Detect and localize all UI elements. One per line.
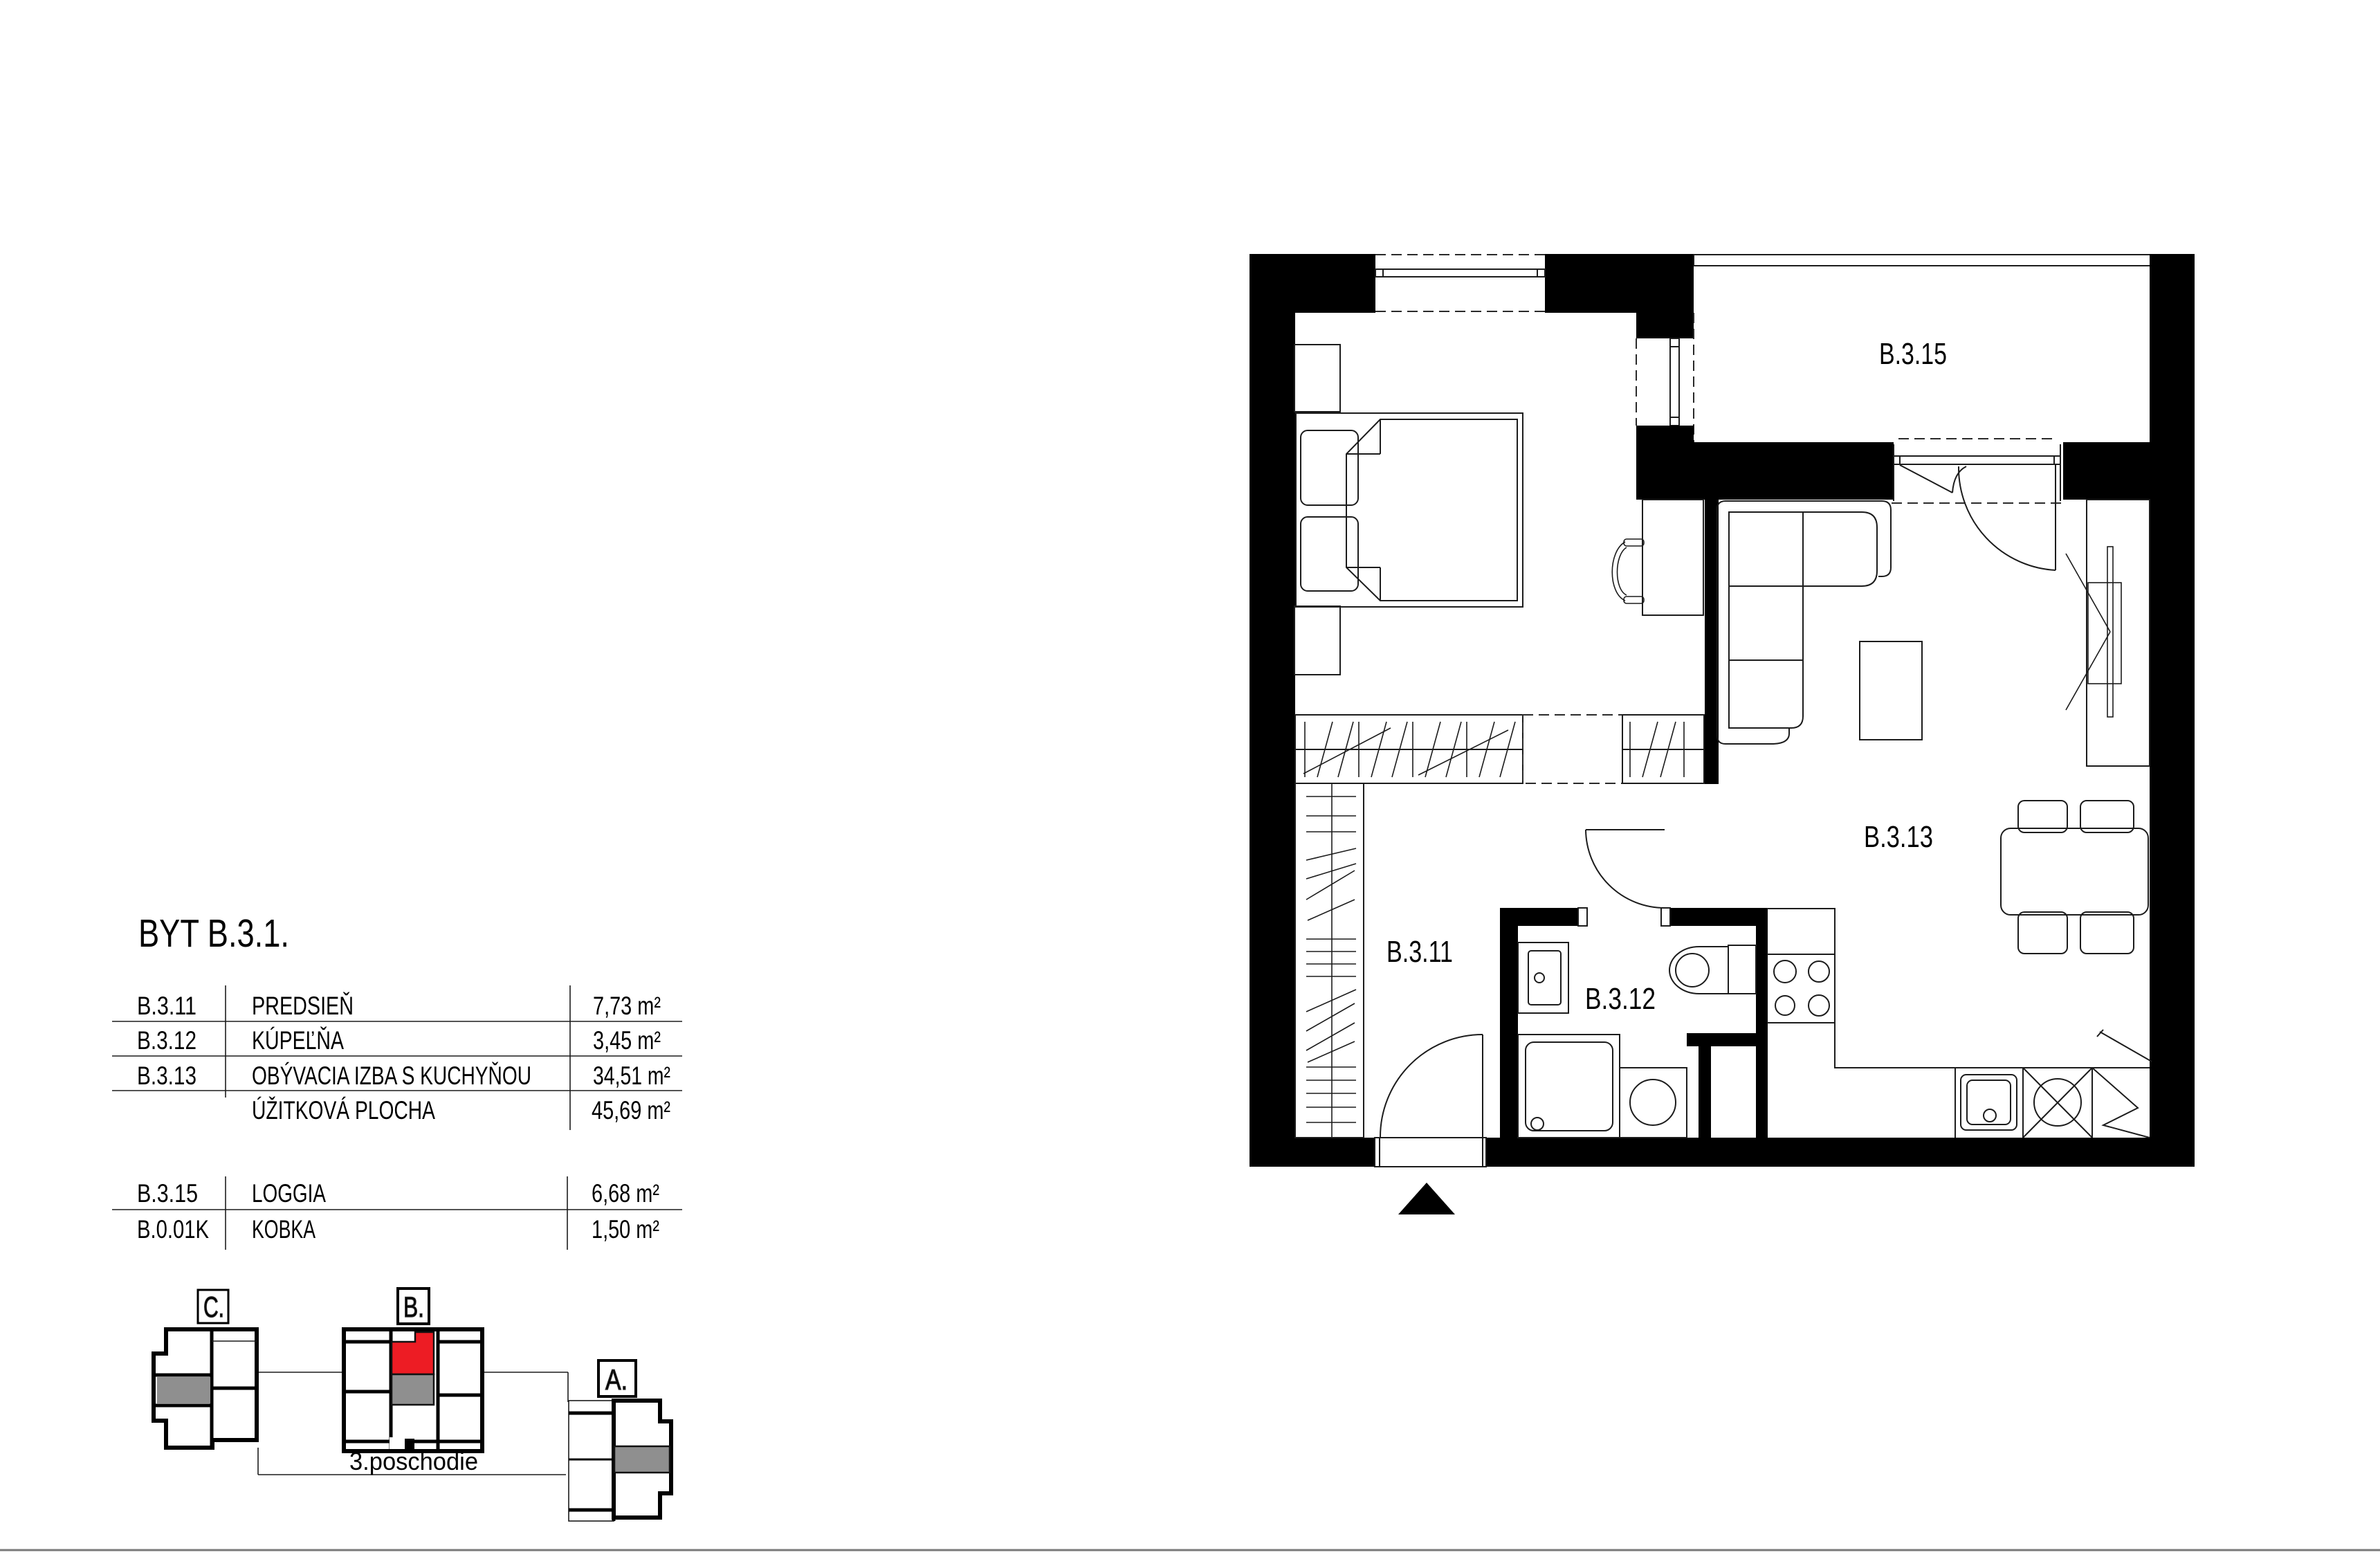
svg-text:PREDSIEŇ: PREDSIEŇ	[252, 992, 354, 1020]
svg-text:ÚŽITKOVÁ PLOCHA: ÚŽITKOVÁ PLOCHA	[252, 1096, 435, 1124]
svg-text:B.3.12: B.3.12	[1585, 982, 1656, 1016]
svg-text:34,51 m²: 34,51 m²	[593, 1062, 670, 1090]
svg-text:B.3.11: B.3.11	[137, 992, 196, 1020]
svg-text:OBÝVACIA IZBA S KUCHYŇOU: OBÝVACIA IZBA S KUCHYŇOU	[252, 1062, 531, 1090]
svg-text:B.3.11: B.3.11	[1386, 935, 1453, 969]
svg-text:1,50 m²: 1,50 m²	[592, 1215, 659, 1244]
svg-text:A.: A.	[605, 1363, 628, 1396]
svg-text:B.3.15: B.3.15	[137, 1179, 198, 1208]
svg-text:BYT B.3.1.: BYT B.3.1.	[138, 911, 289, 956]
svg-text:B.: B.	[403, 1291, 424, 1323]
svg-text:LOGGIA: LOGGIA	[252, 1179, 326, 1208]
svg-text:B.3.15: B.3.15	[1879, 337, 1947, 371]
svg-text:3.poschodie: 3.poschodie	[349, 1447, 478, 1475]
svg-text:3,45 m²: 3,45 m²	[593, 1026, 661, 1055]
svg-text:B.3.13: B.3.13	[1864, 820, 1933, 854]
svg-text:45,69 m²: 45,69 m²	[592, 1096, 670, 1124]
svg-text:6,68 m²: 6,68 m²	[592, 1179, 659, 1208]
svg-text:B.3.12: B.3.12	[137, 1026, 196, 1055]
svg-text:7,73 m²: 7,73 m²	[593, 992, 661, 1020]
svg-text:KÚPEĽŇA: KÚPEĽŇA	[252, 1026, 344, 1055]
svg-text:B.0.01K: B.0.01K	[137, 1215, 209, 1244]
svg-text:C.: C.	[203, 1291, 224, 1323]
svg-text:B.3.13: B.3.13	[137, 1062, 196, 1090]
svg-text:KOBKA: KOBKA	[252, 1215, 315, 1244]
